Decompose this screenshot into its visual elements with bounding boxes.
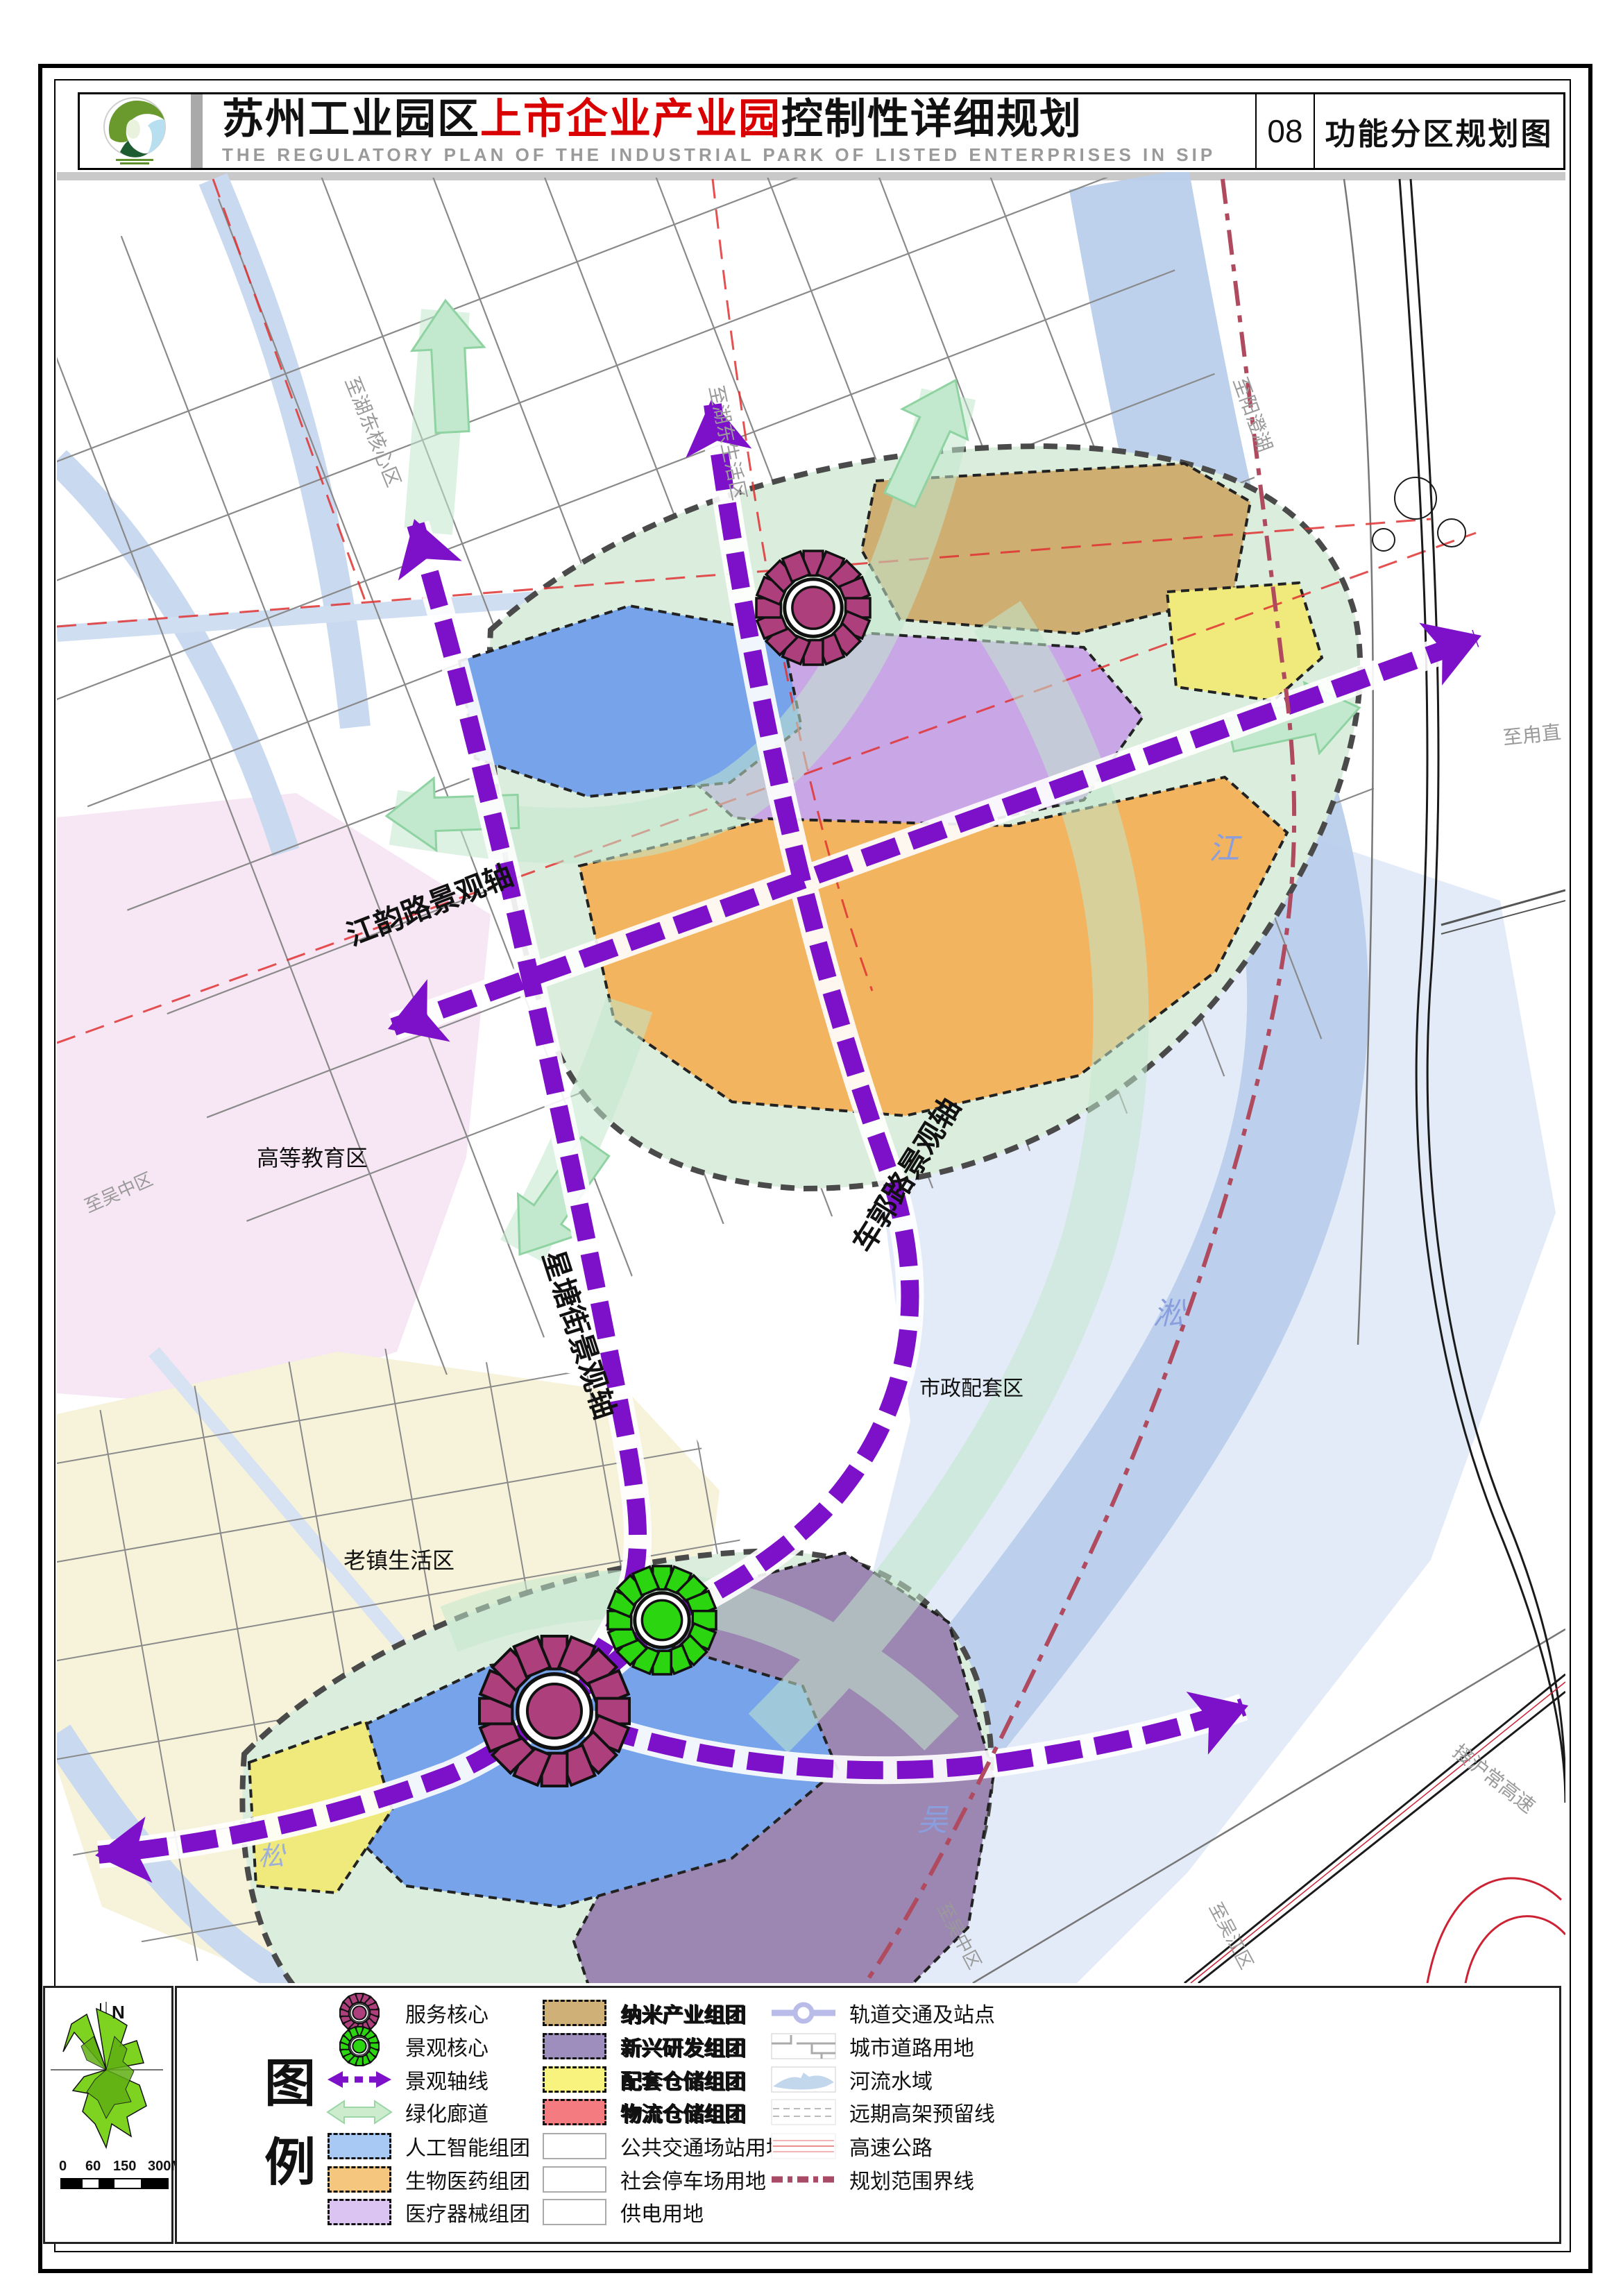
legend-label: 景观轴线 [405,2064,488,2095]
legend-item-plan-boundary: 规划范围界线 [770,2164,974,2195]
wind-rose: N [45,1988,167,2154]
scale-tick: 150 [113,2159,136,2175]
legend-title-char1: 图 [259,2042,321,2116]
legend-label: 纳米产业组团 [620,1998,745,2028]
river-name-char: 松 [258,1842,287,1871]
legend-item-ai-cluster: 人工智能组团 [326,2131,530,2161]
english-subtitle: THE REGULATORY PLAN OF THE INDUSTRIAL PA… [222,144,1255,166]
river-name-char: 淞 [1153,1297,1187,1331]
park-logo [80,94,189,168]
ai-cluster-swatch [328,2133,391,2159]
main-title: 苏州工业园区上市企业产业园控制性详细规划 [222,97,1255,142]
scalebar [60,2178,169,2189]
legend-label: 生物医药组团 [405,2164,530,2195]
support-swatch [543,2066,606,2093]
water-icon [770,2066,837,2093]
legend-item-logistics-cluster: 物流仓储组团 [541,2097,745,2127]
white-swatch [543,2133,606,2159]
legend-item-elevated-reserved: 远期高架预留线 [770,2097,995,2127]
rd-swatch [543,2033,606,2059]
legend-label: 河流水域 [849,2064,933,2095]
plan-sheet-page: 苏州工业园区上市企业产业园控制性详细规划 THE REGULATORY PLAN… [0,0,1623,2296]
nano-swatch [543,2000,606,2026]
legend-item-landscape-core: 景观核心 [326,2031,488,2061]
sheet-number: 08 [1255,94,1314,168]
header-titles: 苏州工业园区上市企业产业园控制性详细规划 THE REGULATORY PLAN… [204,94,1255,168]
corridor-icon [326,2098,393,2126]
scale-tick: 0 [59,2159,67,2175]
legend-item-urban-road: 城市道路用地 [770,2031,974,2061]
main-title-part3: 控制性详细规划 [781,96,1082,142]
header-divider-bar [191,94,203,168]
device-swatch [328,2199,391,2225]
legend-label: 物流仓储组团 [620,2097,745,2127]
legend-item-parking-land: 社会停车场用地 [541,2164,766,2195]
legend-item-green-corridor: 绿化廊道 [326,2097,488,2127]
boundary-line-icon [770,2166,837,2193]
main-title-part2: 上市企业产业园 [480,96,781,142]
legend-item-nano-cluster: 纳米产业组团 [541,1998,745,2028]
legend-item-transit-station-land: 公共交通场站用地 [541,2131,787,2161]
park-logo-icon [90,96,180,166]
legend-label: 服务核心 [405,1998,488,2028]
north-label: N [112,2002,125,2023]
legend-item-expressway: 高速公路 [770,2131,933,2161]
legend-label: 公共交通场站用地 [620,2131,787,2161]
legend-label: 高速公路 [849,2131,933,2161]
legend-item-river-water: 河流水域 [770,2064,933,2095]
edge-label: 接沪常高速 [1449,1740,1538,1817]
legend-item-landscape-axis: 景观轴线 [326,2064,488,2095]
legend-label: 城市道路用地 [849,2031,974,2061]
legend-label: 社会停车场用地 [620,2164,766,2195]
district-label: 市政配套区 [919,1377,1023,1400]
edge-label: 至甪直 [1502,721,1562,749]
white-swatch [543,2199,606,2225]
legend-label: 景观核心 [405,2031,488,2061]
district-label: 高等教育区 [257,1146,368,1171]
title-block: 苏州工业园区上市企业产业园控制性详细规划 THE REGULATORY PLAN… [78,92,1565,170]
legend-label: 供电用地 [620,2197,704,2227]
legend-item-device-cluster: 医疗器械组团 [326,2197,530,2227]
legend-label: 人工智能组团 [405,2131,530,2161]
elevated-line-icon [770,2098,837,2126]
legend-item-power-land: 供电用地 [541,2197,704,2227]
legend-title-char2: 例 [259,2121,321,2195]
compass-panel: N 0 60 150 300M [43,1986,173,2244]
zoning-map-canvas: 江韵路景观轴 星塘街景观轴 车郭路景观轴 高等教育区 老镇生活区 市政配套区 至… [57,172,1565,1983]
service-core-symbol [479,1636,629,1786]
road-icon [770,2032,837,2060]
legend-label: 轨道交通及站点 [849,1998,995,2028]
legend-item-biopharma-cluster: 生物医药组团 [326,2164,530,2195]
legend-label: 医疗器械组团 [405,2197,530,2227]
legend-label: 新兴研发组团 [620,2031,745,2061]
legend-item-rail-transit: 轨道交通及站点 [770,1998,995,2028]
river-name-char: 吴 [917,1803,949,1837]
edge-label: 至湖东核心区 [341,374,405,490]
legend-panel: 图 例 服务核心 景观核心 景观轴线 绿化廊道 人工智能组团 生物医药组团 [175,1986,1561,2244]
biopharma-swatch [328,2166,391,2193]
map-top-strip [57,172,1565,180]
scale-tick: 60 [85,2159,101,2175]
legend-label: 规划范围界线 [849,2164,974,2195]
white-swatch [543,2166,606,2193]
axis-line-icon [326,2067,393,2092]
rail-icon [770,1999,837,2027]
service-core-symbol [756,551,870,665]
legend-item-support-cluster: 配套仓储组团 [541,2064,745,2095]
legend-label: 绿化廊道 [405,2097,488,2127]
legend-label: 配套仓储组团 [620,2064,745,2095]
logistics-swatch [543,2099,606,2125]
river-name-char: 江 [1209,832,1242,866]
district-label: 老镇生活区 [343,1548,454,1573]
landscape-core-symbol [608,1566,716,1674]
expressway-icon [770,2132,837,2160]
legend-item-rd-cluster: 新兴研发组团 [541,2031,745,2061]
legend-label: 远期高架预留线 [849,2097,995,2127]
main-title-part1: 苏州工业园区 [222,96,480,142]
sheet-name: 功能分区规划图 [1314,94,1563,168]
zoning-map: 江韵路景观轴 星塘街景观轴 车郭路景观轴 高等教育区 老镇生活区 市政配套区 至… [57,172,1565,1983]
